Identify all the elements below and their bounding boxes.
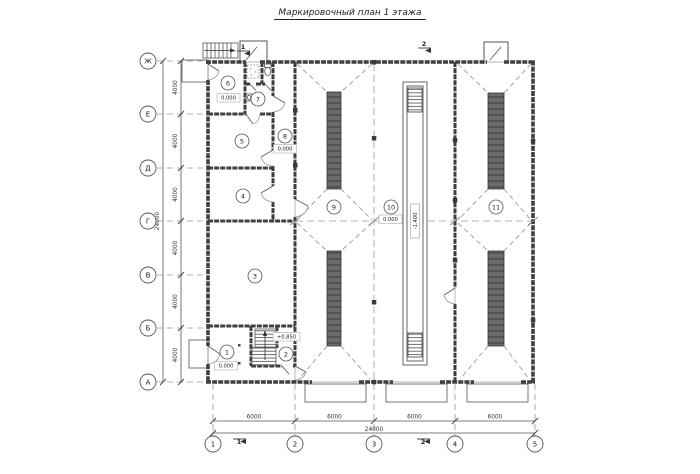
dim-bottom-4: 6000 bbox=[488, 415, 503, 421]
dim-left-4: 4000 bbox=[173, 240, 179, 255]
axis-labels-bottom: 1 2 3 4 5 bbox=[211, 441, 537, 449]
room-4: 4 bbox=[241, 192, 245, 200]
axis-row-a: А bbox=[146, 379, 151, 387]
plan-canvas: 4000 4000 4000 4000 4000 4000 24000 6000… bbox=[0, 0, 700, 474]
section-mark-1-top: 1 bbox=[237, 43, 250, 56]
elevation-pit: -1.400 bbox=[413, 213, 419, 230]
dim-left-3: 4000 bbox=[173, 187, 179, 202]
toilet-fixture bbox=[265, 64, 272, 76]
room-5: 5 bbox=[240, 137, 244, 145]
room-numbers: 1 2 3 4 5 6 7 8 9 10 11 bbox=[225, 79, 500, 358]
axis-col-3: 3 bbox=[372, 441, 376, 449]
dim-bottom-2: 6000 bbox=[327, 415, 342, 421]
axis-row-d: Д bbox=[145, 165, 151, 173]
axis-col-5: 5 bbox=[533, 441, 537, 449]
room-bubbles bbox=[220, 76, 503, 361]
dim-bottom-1: 6000 bbox=[247, 415, 262, 421]
elevation-room1: 0.000 bbox=[219, 364, 234, 370]
pit-elevation-label: -1.400 bbox=[411, 204, 420, 238]
dim-left-6: 4000 bbox=[173, 347, 179, 362]
shower-tray bbox=[247, 65, 259, 78]
room-7: 7 bbox=[256, 95, 260, 103]
elevation-room10: 0.000 bbox=[383, 217, 398, 223]
dim-left-5: 4000 bbox=[173, 294, 179, 309]
room-3: 3 bbox=[253, 272, 257, 280]
axis-row-zh: Ж bbox=[144, 58, 152, 66]
section-mark-2-bottom: 2 bbox=[417, 438, 430, 446]
exterior-aprons-bottom bbox=[305, 384, 528, 402]
elevation-stair-landing: +0.850 bbox=[277, 335, 296, 341]
dim-left-1: 4000 bbox=[173, 80, 179, 95]
axis-lines bbox=[157, 61, 535, 436]
entrance-porch-bottom-left bbox=[189, 340, 208, 368]
dim-bottom-total: 24000 bbox=[365, 427, 384, 433]
room-11: 11 bbox=[492, 203, 500, 211]
dim-left-2: 4000 bbox=[173, 133, 179, 148]
axis-row-b: Б bbox=[146, 325, 151, 333]
axis-row-e: Е bbox=[146, 111, 150, 119]
room-10: 10 bbox=[387, 203, 395, 211]
room-8: 8 bbox=[283, 132, 287, 140]
vestibule-top-right bbox=[484, 42, 508, 61]
axis-col-2: 2 bbox=[293, 441, 297, 449]
dim-bottom-3: 6000 bbox=[407, 415, 422, 421]
section-2-label: 2 bbox=[422, 40, 427, 48]
section-1-label: 1 bbox=[241, 43, 246, 51]
elevation-room6: 0.000 bbox=[221, 96, 236, 102]
elevation-room8: 0.000 bbox=[278, 147, 293, 153]
room-6: 6 bbox=[226, 79, 230, 87]
page-title: Маркировочный план 1 этажа bbox=[0, 8, 700, 18]
room-1: 1 bbox=[225, 348, 229, 356]
plan-title-text: Маркировочный план 1 этажа bbox=[274, 8, 425, 20]
section-mark-2-top: 2 bbox=[418, 40, 431, 53]
section-mark-1-bottom: 1 bbox=[233, 438, 246, 446]
axis-col-4: 4 bbox=[453, 441, 458, 449]
entrance-porch-top-left bbox=[182, 60, 208, 82]
room-2: 2 bbox=[284, 350, 288, 358]
floor-plan-drawing: Маркировочный план 1 этажа bbox=[0, 0, 700, 474]
exterior-stair-top-left bbox=[203, 43, 238, 58]
axis-row-g: Г bbox=[146, 218, 150, 226]
room-9: 9 bbox=[332, 203, 336, 211]
axis-col-1: 1 bbox=[211, 441, 215, 449]
room1-column-dots bbox=[238, 344, 241, 365]
axis-row-v: В bbox=[146, 272, 151, 280]
dimension-chain-left: 4000 4000 4000 4000 4000 4000 24000 bbox=[155, 58, 184, 385]
